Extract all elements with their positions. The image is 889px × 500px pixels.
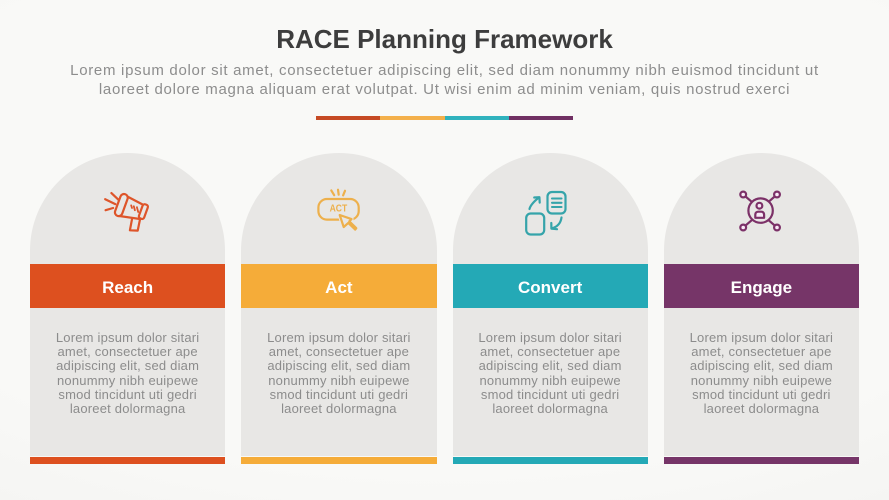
svg-text:ACT: ACT (330, 203, 348, 214)
